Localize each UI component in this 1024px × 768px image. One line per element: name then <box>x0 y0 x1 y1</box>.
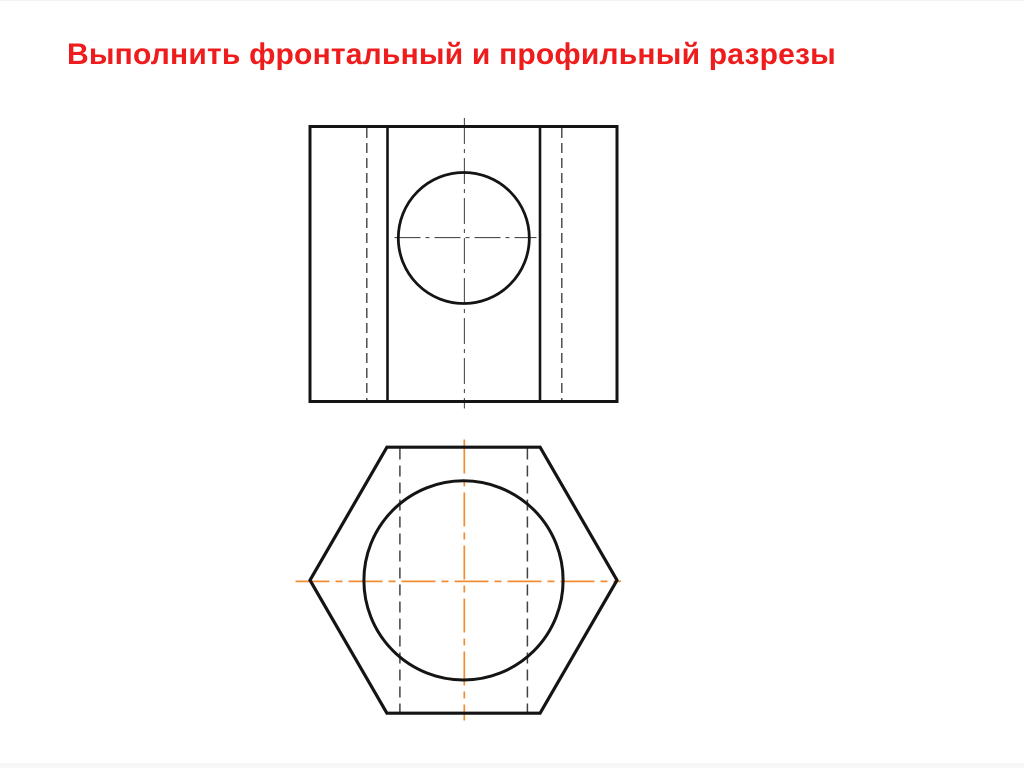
front-view-outlines <box>310 127 617 402</box>
front-view-outline-rect <box>310 127 617 402</box>
presentation-slide: Выполнить фронтальный и профильный разре… <box>0 0 1024 768</box>
slide-bottom-edge <box>0 763 1024 768</box>
top-view <box>296 440 622 721</box>
front-view-center-lines <box>395 118 537 409</box>
front-view <box>310 118 617 409</box>
technical-drawing <box>0 1 1024 768</box>
